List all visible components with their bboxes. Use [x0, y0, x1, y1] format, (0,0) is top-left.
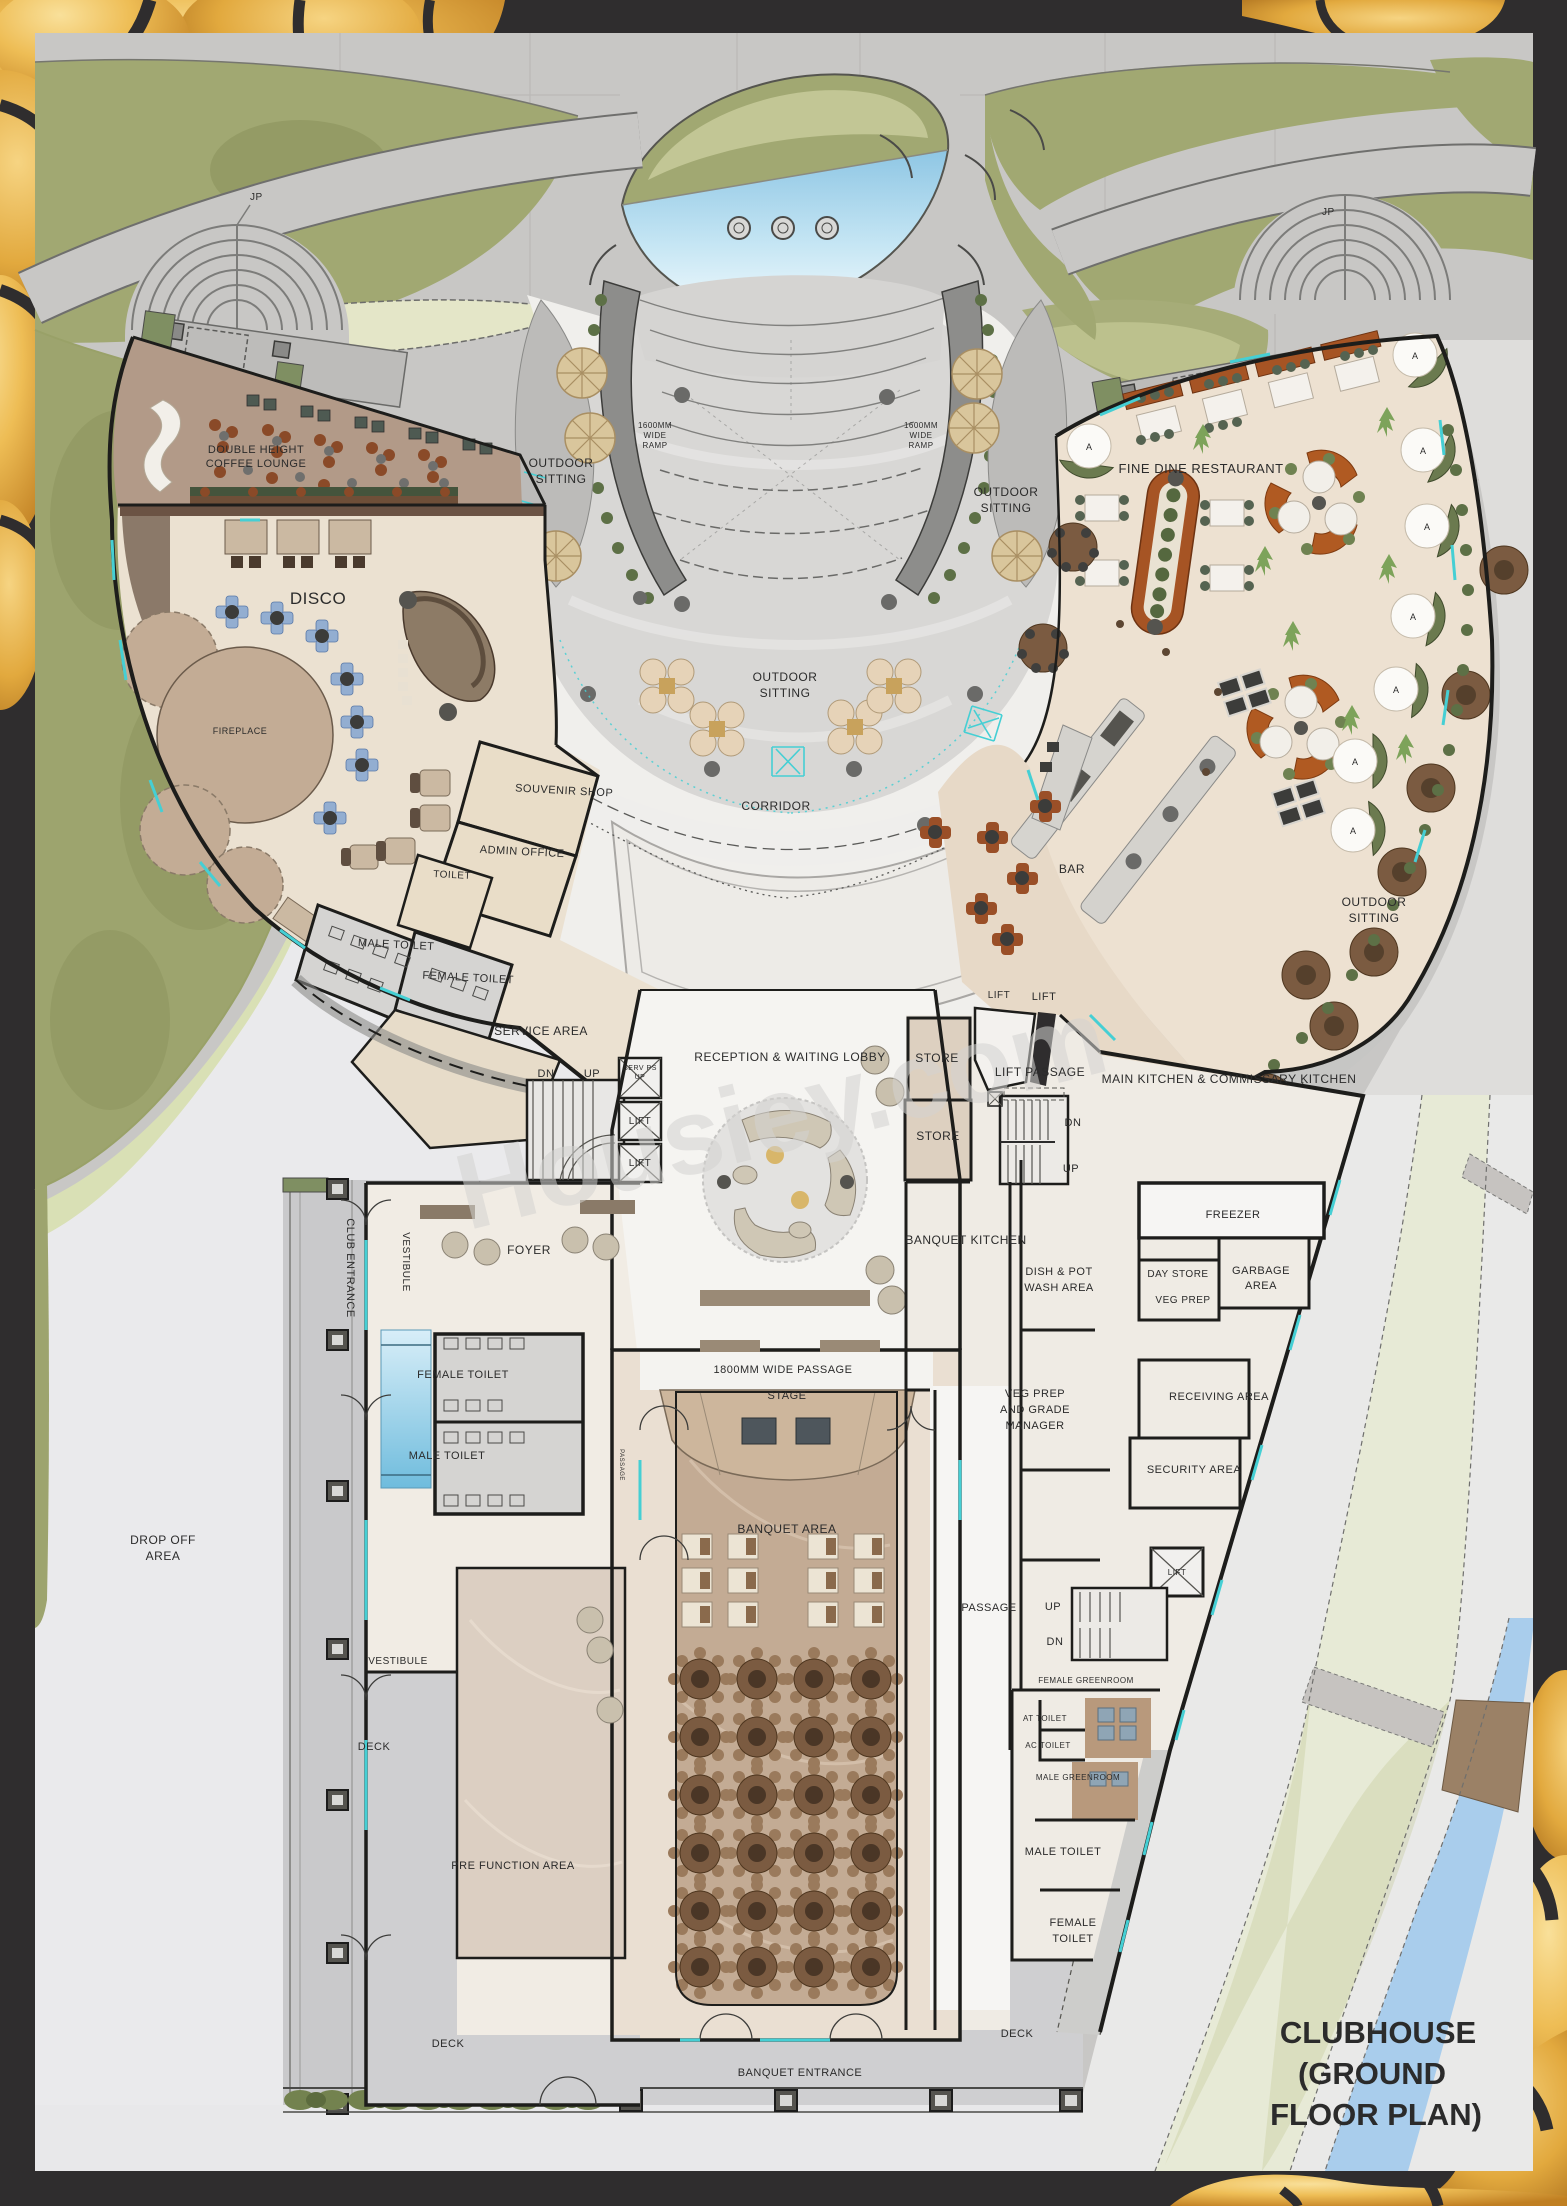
svg-text:A: A: [1086, 442, 1092, 452]
svg-text:FOYER: FOYER: [507, 1243, 551, 1257]
svg-text:FIREPLACE: FIREPLACE: [213, 726, 268, 736]
svg-text:UP: UP: [584, 1068, 600, 1080]
svg-text:MALE TOILET: MALE TOILET: [409, 1450, 486, 1462]
svg-text:BAR: BAR: [1059, 862, 1085, 876]
svg-text:DN: DN: [1065, 1117, 1082, 1129]
svg-text:RAMP: RAMP: [908, 441, 933, 450]
svg-text:OUTDOOR: OUTDOOR: [974, 485, 1039, 499]
svg-text:AT TOILET: AT TOILET: [1023, 1714, 1067, 1723]
svg-text:WASH AREA: WASH AREA: [1024, 1282, 1094, 1294]
svg-text:RAMP: RAMP: [642, 441, 667, 450]
svg-text:LIFT: LIFT: [629, 1158, 652, 1169]
svg-text:BANQUET KITCHEN: BANQUET KITCHEN: [905, 1233, 1026, 1247]
svg-text:CORRIDOR: CORRIDOR: [741, 799, 810, 813]
svg-text:TOILET: TOILET: [433, 869, 471, 882]
svg-text:PRE FUNCTION AREA: PRE FUNCTION AREA: [451, 1860, 575, 1872]
svg-text:PASSAGE: PASSAGE: [961, 1602, 1016, 1614]
svg-text:A: A: [1424, 522, 1430, 532]
svg-text:1800MM WIDE PASSAGE: 1800MM WIDE PASSAGE: [714, 1364, 853, 1376]
svg-text:SERV PS: SERV PS: [623, 1065, 657, 1072]
svg-text:FEMALE TOILET: FEMALE TOILET: [417, 1369, 509, 1381]
svg-text:RECEIVING AREA: RECEIVING AREA: [1169, 1391, 1269, 1403]
svg-text:OUTDOOR: OUTDOOR: [1342, 895, 1407, 909]
svg-text:FEMALE GREENROOM: FEMALE GREENROOM: [1038, 1676, 1134, 1685]
svg-text:DAY STORE: DAY STORE: [1147, 1269, 1208, 1280]
svg-text:AND GRADE: AND GRADE: [1000, 1404, 1070, 1416]
svg-text:COFFEE LOUNGE: COFFEE LOUNGE: [206, 458, 307, 470]
svg-text:AC TOILET: AC TOILET: [1025, 1741, 1071, 1750]
svg-text:(GROUND: (GROUND: [1298, 2056, 1446, 2091]
svg-text:A: A: [1412, 351, 1418, 361]
svg-text:TOILET: TOILET: [1052, 1933, 1093, 1945]
svg-text:VESTIBULE: VESTIBULE: [400, 1232, 411, 1292]
svg-text:CLUBHOUSE: CLUBHOUSE: [1280, 2015, 1476, 2050]
svg-text:SECURITY AREA: SECURITY AREA: [1147, 1464, 1241, 1476]
svg-text:A: A: [1352, 757, 1358, 767]
svg-text:BANQUET AREA: BANQUET AREA: [737, 1522, 836, 1536]
svg-text:SITTING: SITTING: [981, 501, 1032, 515]
svg-text:SITTING: SITTING: [1349, 911, 1400, 925]
svg-text:BANQUET ENTRANCE: BANQUET ENTRANCE: [738, 2067, 863, 2079]
svg-text:STORE: STORE: [915, 1051, 959, 1065]
svg-text:DECK: DECK: [358, 1741, 391, 1753]
svg-text:UP: UP: [1045, 1601, 1061, 1613]
svg-text:OUTDOOR: OUTDOOR: [529, 456, 594, 470]
svg-text:VESTIBULE: VESTIBULE: [368, 1656, 428, 1667]
svg-text:A: A: [1350, 826, 1356, 836]
svg-text:1600MM: 1600MM: [638, 421, 672, 430]
svg-text:DOUBLE HEIGHT: DOUBLE HEIGHT: [208, 444, 304, 456]
svg-text:STAGE: STAGE: [768, 1390, 807, 1402]
svg-text:JP: JP: [1322, 207, 1335, 218]
svg-text:WIDE: WIDE: [910, 431, 933, 440]
svg-text:UP: UP: [635, 1074, 646, 1081]
svg-text:DISH & POT: DISH & POT: [1025, 1266, 1092, 1278]
svg-text:A: A: [1410, 612, 1416, 622]
svg-text:DN: DN: [1047, 1636, 1064, 1648]
svg-text:MALE GREENROOM: MALE GREENROOM: [1036, 1773, 1120, 1782]
svg-text:SITTING: SITTING: [760, 686, 811, 700]
svg-text:DECK: DECK: [432, 2038, 465, 2050]
svg-text:FLOOR PLAN): FLOOR PLAN): [1270, 2097, 1482, 2132]
svg-text:STORE: STORE: [916, 1129, 960, 1143]
svg-text:MALE TOILET: MALE TOILET: [1025, 1846, 1102, 1858]
svg-text:RECEPTION & WAITING LOBBY: RECEPTION & WAITING LOBBY: [694, 1050, 885, 1064]
svg-text:CLUB ENTRANCE: CLUB ENTRANCE: [344, 1218, 356, 1317]
svg-text:LIFT PASSAGE: LIFT PASSAGE: [995, 1065, 1085, 1079]
svg-text:VEG PREP: VEG PREP: [1005, 1388, 1065, 1400]
svg-text:WIDE: WIDE: [644, 431, 667, 440]
svg-text:DROP OFF: DROP OFF: [130, 1533, 196, 1547]
svg-text:A: A: [1420, 446, 1426, 456]
svg-text:AREA: AREA: [146, 1549, 181, 1563]
svg-text:SITTING: SITTING: [536, 472, 587, 486]
svg-text:AREA: AREA: [1245, 1280, 1277, 1292]
svg-text:FINE DINE RESTAURANT: FINE DINE RESTAURANT: [1118, 461, 1283, 476]
svg-text:1600MM: 1600MM: [904, 421, 938, 430]
svg-text:GARBAGE: GARBAGE: [1232, 1265, 1290, 1277]
svg-text:OUTDOOR: OUTDOOR: [753, 670, 818, 684]
svg-text:LIFT: LIFT: [1168, 1568, 1186, 1577]
svg-text:A: A: [1393, 685, 1399, 695]
svg-text:JP: JP: [250, 192, 263, 203]
svg-text:FREEZER: FREEZER: [1206, 1209, 1261, 1221]
svg-text:UP: UP: [1063, 1163, 1079, 1175]
svg-text:PASSAGE: PASSAGE: [618, 1449, 624, 1481]
svg-text:FEMALE: FEMALE: [1049, 1917, 1096, 1929]
svg-text:VEG PREP: VEG PREP: [1155, 1295, 1210, 1306]
svg-text:LIFT: LIFT: [988, 990, 1011, 1001]
svg-text:MAIN KITCHEN & COMMISSARY KITC: MAIN KITCHEN & COMMISSARY KITCHEN: [1102, 1072, 1357, 1086]
svg-text:DISCO: DISCO: [290, 589, 346, 608]
svg-text:DN: DN: [538, 1068, 555, 1080]
svg-text:MANAGER: MANAGER: [1005, 1420, 1064, 1432]
svg-text:LIFT: LIFT: [1032, 991, 1057, 1003]
svg-text:LIFT: LIFT: [629, 1116, 652, 1127]
svg-text:SERVICE AREA: SERVICE AREA: [494, 1024, 588, 1038]
svg-text:DECK: DECK: [1001, 2028, 1034, 2040]
